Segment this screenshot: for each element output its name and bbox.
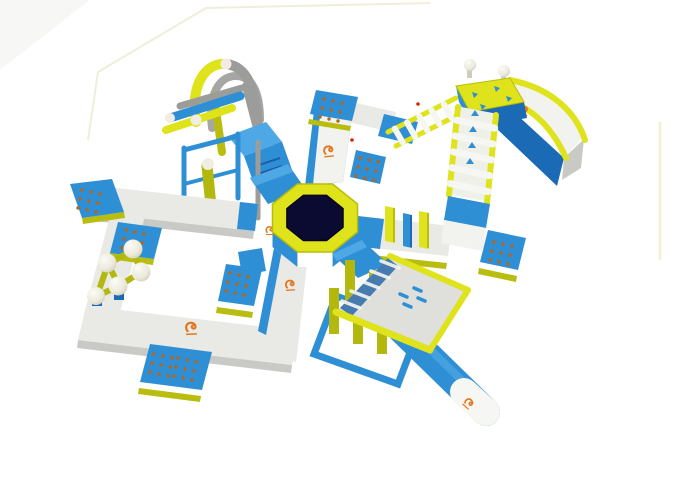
ramp-pad [350, 150, 386, 184]
post-ball [464, 59, 476, 71]
trampoline-mat [287, 195, 343, 240]
balance-ball [87, 287, 105, 305]
valve-dot [416, 102, 420, 106]
balance-ball [98, 254, 117, 273]
balance-ball [124, 240, 143, 259]
balance-ball [132, 263, 151, 282]
backdrop-corner-shade [0, 0, 90, 70]
water-park-scene [0, 0, 700, 482]
ramp-pad [480, 230, 526, 270]
log-tip [464, 392, 486, 412]
canopy-obstacle [314, 256, 486, 412]
walkway-north-arm [305, 90, 396, 186]
product-render [0, 0, 700, 482]
ramp-pad [238, 248, 266, 275]
balance-ball [109, 277, 128, 296]
post-ball [498, 65, 510, 77]
valve-dot [350, 138, 354, 142]
